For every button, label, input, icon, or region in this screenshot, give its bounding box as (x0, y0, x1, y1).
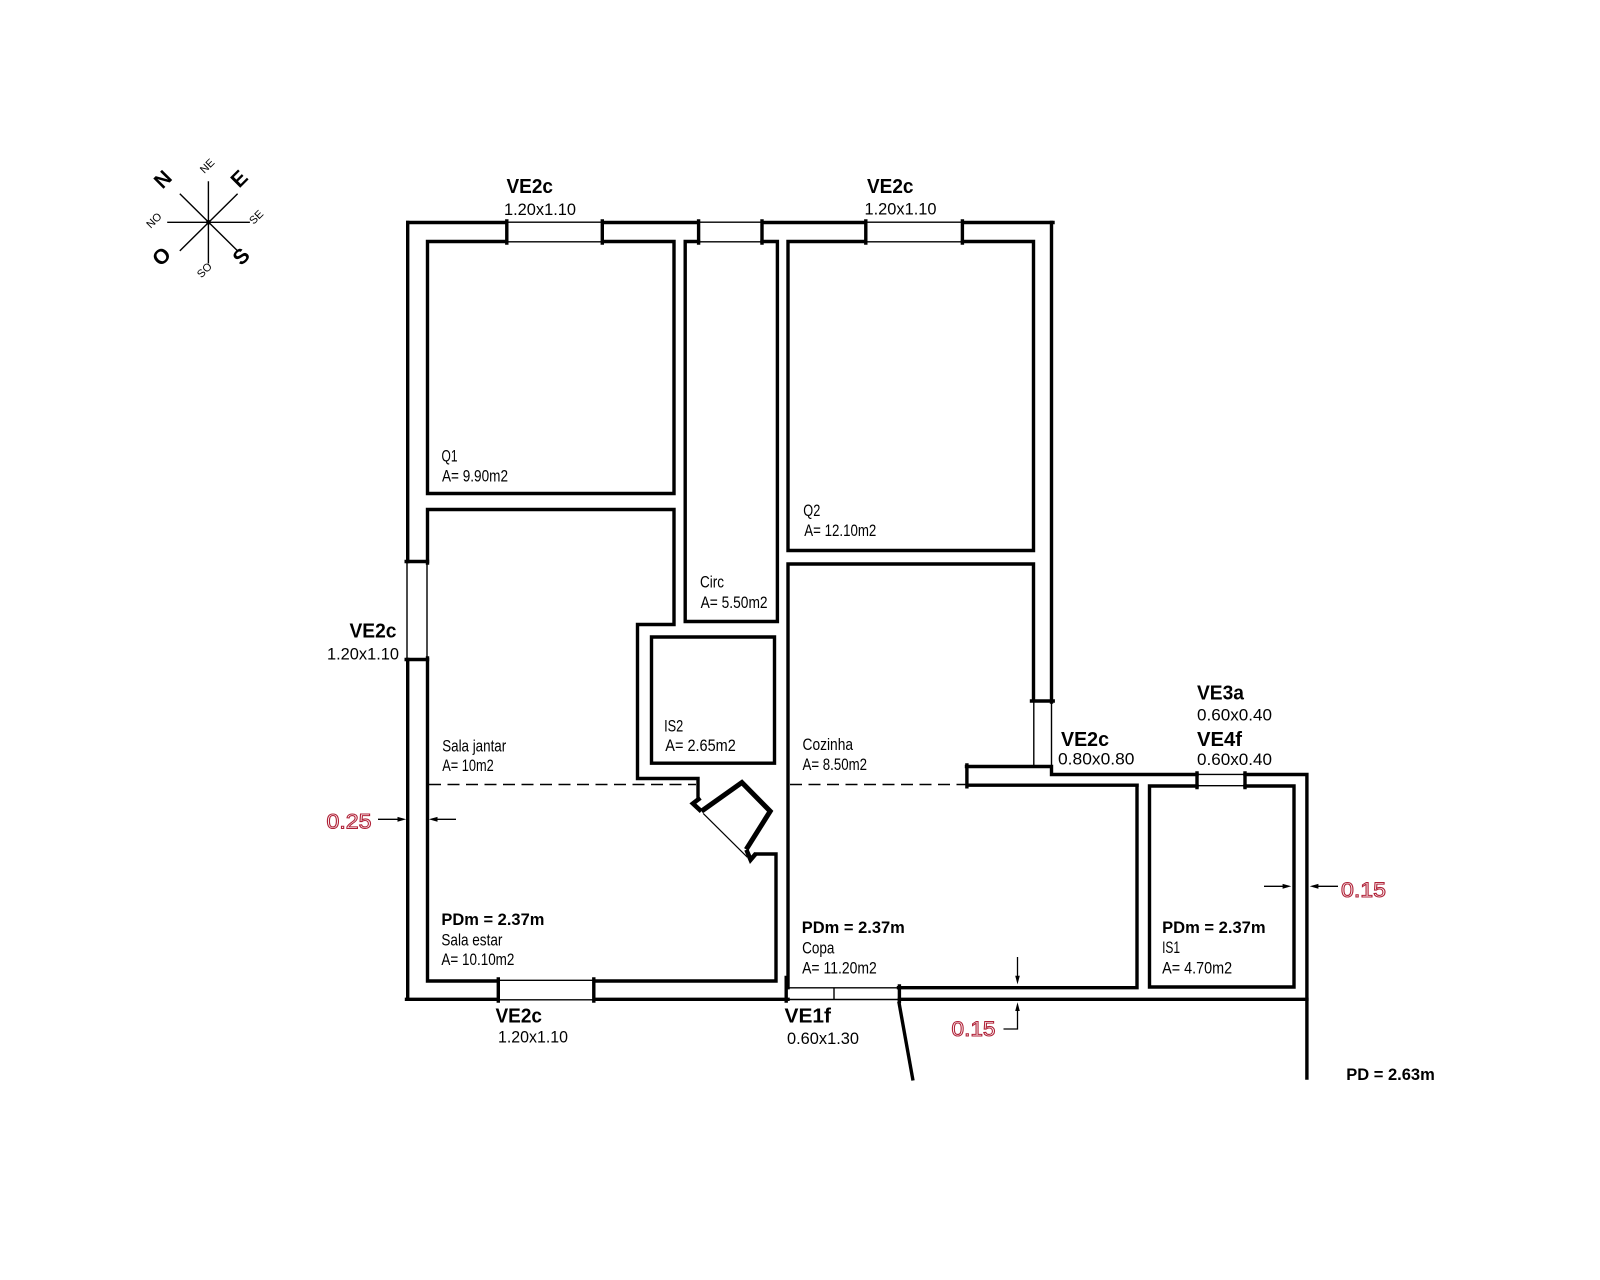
svg-text:A= 8.50m2: A= 8.50m2 (803, 755, 868, 774)
svg-text:PD = 2.63m: PD = 2.63m (1346, 1065, 1435, 1084)
svg-text:Copa: Copa (802, 938, 835, 957)
svg-text:Q2: Q2 (803, 501, 820, 520)
svg-text:VE2c: VE2c (507, 176, 554, 198)
svg-text:A= 10m2: A= 10m2 (442, 756, 494, 775)
svg-text:A= 5.50m2: A= 5.50m2 (701, 593, 768, 612)
svg-text:Q1: Q1 (442, 447, 458, 466)
svg-text:0.60x0.40: 0.60x0.40 (1197, 750, 1272, 769)
svg-text:IS1: IS1 (1162, 938, 1180, 957)
svg-text:A= 12.10m2: A= 12.10m2 (804, 521, 876, 540)
svg-text:Sala jantar: Sala jantar (442, 737, 506, 756)
svg-text:0.80x0.80: 0.80x0.80 (1058, 750, 1135, 769)
svg-text:VE3a: VE3a (1197, 683, 1245, 705)
svg-text:IS2: IS2 (664, 717, 683, 736)
svg-text:A= 4.70m2: A= 4.70m2 (1162, 958, 1232, 977)
svg-text:VE4f: VE4f (1197, 729, 1242, 751)
svg-text:0.15: 0.15 (952, 1017, 996, 1041)
svg-text:1.20x1.10: 1.20x1.10 (504, 200, 576, 219)
svg-text:VE2c: VE2c (350, 620, 397, 642)
svg-text:A= 11.20m2: A= 11.20m2 (802, 959, 877, 978)
svg-text:PDm = 2.37m: PDm = 2.37m (441, 910, 544, 929)
svg-text:1.20x1.10: 1.20x1.10 (865, 199, 937, 218)
svg-text:VE2c: VE2c (496, 1006, 543, 1028)
svg-text:Cozinha: Cozinha (803, 735, 854, 754)
svg-text:1.20x1.10: 1.20x1.10 (327, 644, 399, 663)
svg-text:0.60x0.40: 0.60x0.40 (1197, 706, 1272, 725)
svg-text:A= 2.65m2: A= 2.65m2 (665, 736, 736, 755)
svg-text:Circ: Circ (700, 573, 724, 592)
svg-text:PDm = 2.37m: PDm = 2.37m (1162, 918, 1266, 937)
svg-text:VE1f: VE1f (785, 1006, 832, 1028)
svg-text:VE2c: VE2c (867, 176, 914, 198)
svg-text:0.25: 0.25 (327, 809, 372, 833)
svg-text:Sala estar: Sala estar (441, 930, 502, 949)
svg-text:A= 10.10m2: A= 10.10m2 (441, 950, 514, 969)
svg-text:A= 9.90m2: A= 9.90m2 (442, 467, 508, 486)
svg-text:PDm = 2.37m: PDm = 2.37m (802, 918, 905, 937)
svg-text:0.60x1.30: 0.60x1.30 (787, 1029, 859, 1048)
svg-text:VE2c: VE2c (1061, 729, 1109, 751)
svg-text:1.20x1.10: 1.20x1.10 (498, 1028, 568, 1047)
svg-text:0.15: 0.15 (1341, 878, 1386, 902)
